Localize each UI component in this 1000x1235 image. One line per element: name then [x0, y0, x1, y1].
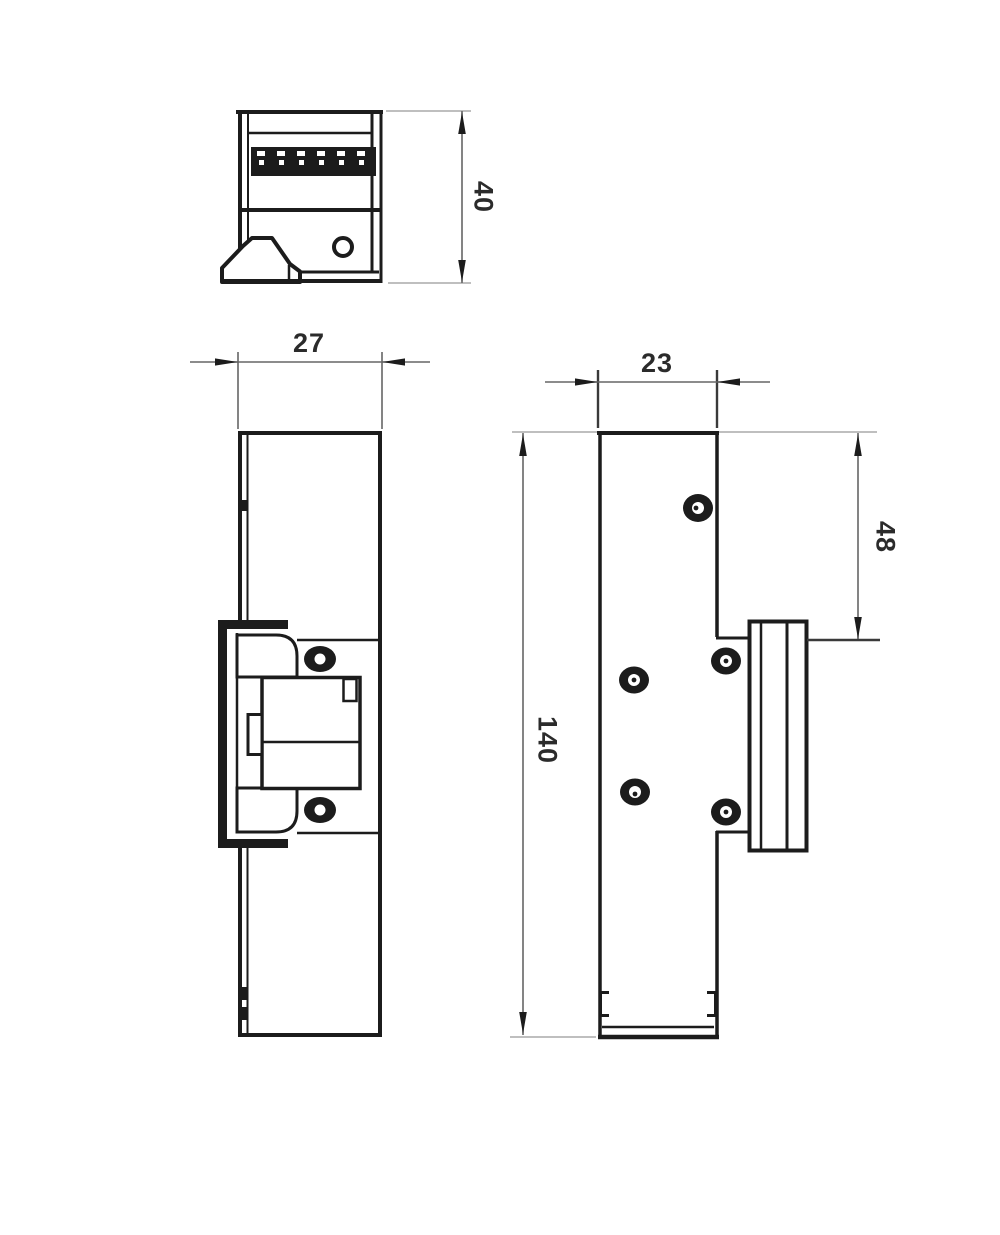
screw-hole — [619, 667, 649, 694]
arrowhead-icon — [717, 378, 740, 385]
dim-48-label: 48 — [871, 521, 901, 553]
screw-hole — [683, 494, 713, 522]
dim-27-label: 27 — [293, 328, 325, 358]
screw-hole — [711, 648, 741, 675]
latch-assembly — [223, 625, 361, 844]
screw-hole — [304, 797, 336, 823]
arrowhead-icon — [854, 434, 862, 456]
keeper-block — [262, 678, 360, 789]
arrowhead-icon — [519, 434, 527, 456]
dimension-140: 140 — [510, 433, 596, 1037]
screw-hole — [711, 799, 741, 826]
dim-40-label: 40 — [469, 181, 499, 213]
faceplate-tick — [240, 1007, 247, 1020]
faceplate-tick — [240, 500, 247, 511]
keeper-lip-bottom — [237, 788, 297, 832]
technical-drawing: 40 — [0, 0, 1000, 1235]
dimension-40: 40 — [386, 111, 499, 283]
terminal-band — [251, 147, 376, 176]
arrowhead-icon — [215, 358, 238, 365]
keeper-lip-top — [237, 635, 297, 677]
screw-hole — [620, 779, 650, 806]
arrowhead-icon — [575, 378, 598, 385]
clip-right — [707, 993, 716, 1016]
dimension-23: 23 — [545, 348, 770, 428]
front-view — [223, 433, 381, 1035]
clip-left — [601, 993, 610, 1016]
arrowhead-icon — [382, 358, 405, 365]
top-view — [222, 110, 383, 283]
drawing-canvas: 40 — [0, 0, 1000, 1235]
screw-hole — [304, 646, 336, 672]
dim-140-label: 140 — [533, 716, 563, 764]
rail-block — [750, 622, 807, 851]
arrowhead-icon — [854, 617, 862, 639]
arrowhead-icon — [458, 112, 466, 134]
side-view — [512, 431, 877, 1039]
arrowhead-icon — [458, 260, 466, 282]
dimension-48: 48 — [807, 433, 901, 640]
faceplate-tick — [240, 987, 247, 1000]
dim-23-label: 23 — [641, 348, 673, 378]
hole — [334, 238, 352, 256]
arrowhead-icon — [519, 1012, 527, 1034]
dimension-27: 27 — [190, 328, 430, 429]
